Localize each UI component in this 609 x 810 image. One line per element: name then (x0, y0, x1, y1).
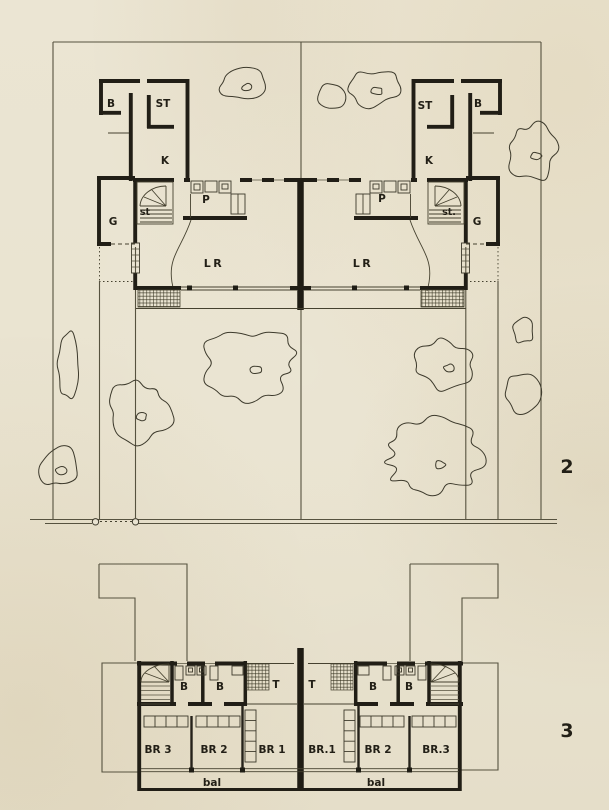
label-balcony-left: bal (203, 777, 221, 789)
tree-inner-detail (136, 413, 146, 421)
terrace-hatch-upper-left (247, 664, 269, 690)
tree-outline (318, 84, 346, 109)
kitchen-counter-right (370, 181, 410, 193)
room-label-stairs-right: st. (442, 207, 456, 218)
room-label-terrace-right: T (308, 679, 316, 691)
tree-outline (39, 446, 78, 485)
room-label-storage-right: ST (418, 100, 434, 112)
tree-outline (513, 317, 533, 343)
room-label-bedroom1-left: BR 1 (258, 744, 285, 756)
garage-right (466, 176, 500, 246)
tree-outline (509, 121, 559, 180)
kitchen-counter-left (191, 181, 231, 193)
room-label-bedroom3-left: BR 3 (144, 744, 171, 756)
room-label-living-left: LR (204, 257, 224, 270)
room-label-terrace-left: T (272, 679, 280, 691)
room-label-garage-right: G (473, 216, 482, 228)
tree-outline (348, 72, 401, 109)
room-label-storage-left: ST (156, 98, 172, 110)
label-balcony-right: bal (367, 777, 385, 789)
tree-outline (219, 67, 265, 98)
floor-plan-drawing: B ST K st G P LR ST B K P st. G LR 2 (0, 0, 609, 810)
right-unit-ground-floor (300, 79, 502, 307)
staircase-left-upper (141, 664, 170, 704)
tree-inner-detail (443, 364, 454, 372)
room-label-bath-right: B (474, 98, 482, 110)
room-label-stairs-left: st (140, 207, 151, 218)
tree-outline (414, 338, 472, 391)
terrace-hatch-right (421, 290, 464, 307)
bathroom-fixtures-right (358, 666, 426, 680)
terrace-hatch-left (138, 290, 180, 307)
ground-floor-site-plan: B ST K st G P LR ST B K P st. G LR 2 (30, 42, 574, 525)
terrace-hatch-upper-right (331, 664, 353, 690)
tree-inner-detail (250, 366, 262, 373)
room-label-bath2-right: B (405, 681, 413, 693)
room-label-pantry-right: P (378, 193, 386, 205)
figure-number-3: 3 (560, 720, 573, 742)
room-label-kitchen-left: K (161, 155, 170, 167)
room-label-bedroom1-right: BR.1 (308, 744, 336, 756)
tree-inner-detail (371, 87, 382, 94)
garage-left (97, 176, 135, 246)
tree-outline (57, 331, 78, 399)
room-label-bedroom3-right: BR.3 (422, 744, 450, 756)
left-unit-ground-floor (97, 79, 301, 307)
room-label-living-right: LR (353, 257, 373, 270)
bathroom-fixtures-left (175, 666, 243, 680)
tree-outline (505, 374, 541, 414)
room-label-bedroom2-right: BR 2 (364, 744, 391, 756)
tree-inner-detail (436, 461, 446, 469)
scanned-floor-plan-page: B ST K st G P LR ST B K P st. G LR 2 (0, 0, 609, 810)
room-label-bath-left: B (107, 98, 115, 110)
staircase-right-upper (430, 664, 459, 704)
room-label-bath1-left: B (180, 681, 188, 693)
tree-inner-detail (531, 152, 542, 159)
tree-outline (385, 415, 487, 495)
tree-inner-detail (55, 466, 67, 474)
upper-floor-plan: B B T T B B BR 3 BR 2 BR 1 BR.1 BR 2 BR.… (99, 564, 574, 791)
room-label-kitchen-right: K (425, 155, 434, 167)
room-label-bedroom2-left: BR 2 (200, 744, 227, 756)
room-label-bath2-left: B (216, 681, 224, 693)
figure-number-2: 2 (560, 456, 573, 478)
room-label-bath1-right: B (369, 681, 377, 693)
room-label-garage-left: G (109, 216, 118, 228)
tree-inner-detail (242, 83, 252, 90)
room-label-pantry-left: P (202, 194, 210, 206)
